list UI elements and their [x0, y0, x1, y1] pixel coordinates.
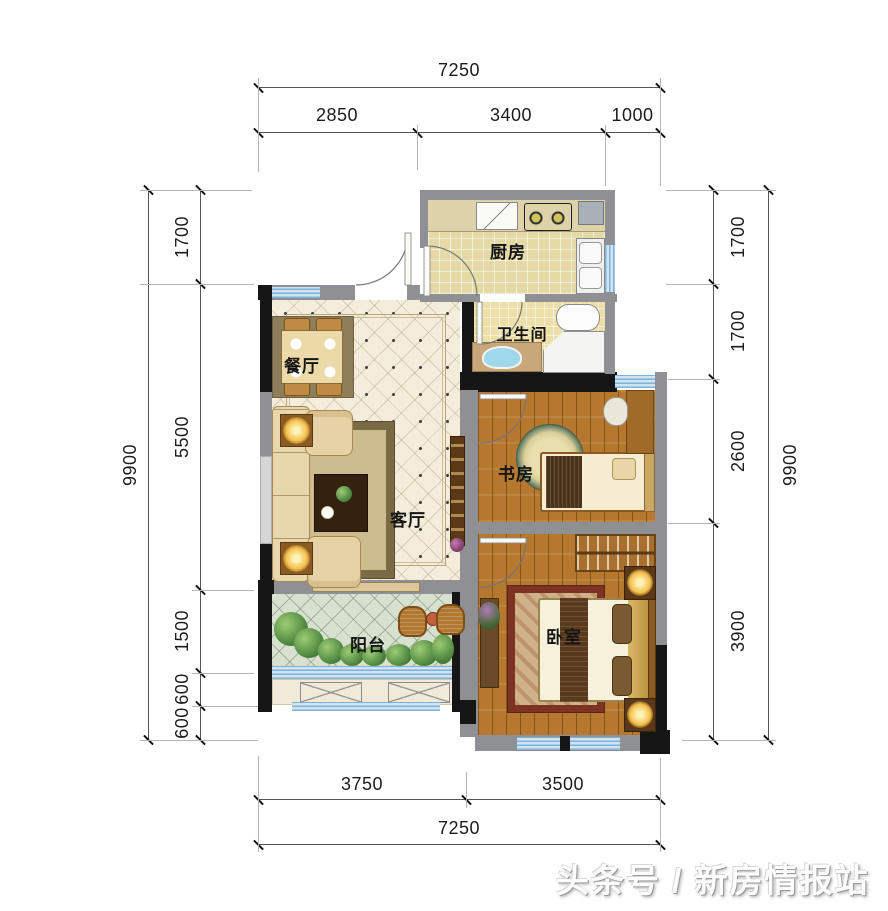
balcony-window	[272, 666, 452, 679]
balcony-left-wall	[258, 592, 272, 712]
dim-left-seg-line	[200, 190, 201, 740]
dining-label: 餐厅	[262, 352, 342, 377]
ext-line	[140, 284, 254, 285]
kitchen-appliance	[578, 201, 604, 225]
balcony-plant	[432, 634, 454, 664]
dim-top-seg-1: 2850	[297, 105, 377, 125]
ext-line	[192, 673, 254, 674]
study-window	[615, 375, 657, 388]
ext-line	[660, 758, 661, 852]
ext-line	[258, 78, 259, 172]
dining-window	[272, 287, 320, 298]
cutting-board	[476, 202, 518, 230]
left-wall-living-lower	[260, 544, 272, 584]
dim-right-seg-4: 3900	[728, 591, 748, 671]
bathroom-bottom-wall	[460, 372, 617, 392]
top-left-corner-wall	[258, 285, 272, 300]
kitchen-sink-bowl-2	[579, 267, 602, 289]
living-label: 客厅	[368, 506, 448, 531]
ext-line	[192, 590, 254, 591]
lamp-glow-bottom	[283, 545, 310, 572]
ext-line	[417, 125, 418, 170]
nightstand-lamp-top	[627, 569, 653, 596]
study-bedroom-wall	[478, 522, 667, 534]
ext-line	[668, 523, 720, 524]
bed-pillow-2	[612, 656, 632, 696]
study-bed-headboard	[644, 452, 655, 512]
kitchen-label: 厨房	[468, 238, 548, 263]
coffee-table	[314, 474, 368, 532]
left-wall-living-upper	[260, 392, 272, 456]
bedroom-label: 卧室	[524, 623, 604, 648]
dim-left-total-line	[148, 190, 149, 740]
ext-line	[466, 772, 467, 808]
ledge-vent-box-2	[388, 682, 450, 703]
left-wall-window	[260, 456, 272, 544]
ext-line	[192, 706, 258, 707]
study-desk	[626, 390, 654, 454]
bedroom-corner-black	[640, 730, 670, 754]
ext-line	[660, 78, 661, 186]
kitchen-bottom-wall-right	[525, 294, 617, 302]
dim-top-total-line	[258, 87, 660, 88]
dim-bottom-seg-1: 3750	[322, 774, 402, 794]
dim-bottom-total: 7250	[419, 818, 499, 838]
kitchen-window	[605, 245, 615, 292]
dim-left-total: 9900	[120, 425, 140, 505]
dim-right-seg-2: 1700	[728, 291, 748, 371]
coffee-table-plant	[336, 486, 352, 502]
nightstand-lamp-bottom	[627, 701, 653, 728]
kitchen-left-wall	[420, 198, 428, 248]
dim-right-total-line	[768, 190, 769, 740]
dim-right-seg-line	[713, 190, 714, 740]
bathroom-right-wall	[605, 302, 615, 374]
dim-right-total: 9900	[780, 425, 800, 505]
right-wall	[655, 388, 667, 648]
dim-left-seg-5: 600	[172, 683, 192, 763]
entrance-door-leaf	[405, 233, 411, 285]
dim-top-seg-line	[258, 132, 660, 133]
watermark-text: 头条号 / 新房情报站	[556, 854, 886, 902]
armchair-bottom	[307, 536, 361, 588]
tv-cabinet-plant	[450, 538, 464, 552]
balcony-chair-2	[436, 604, 465, 635]
bedroom-left-wall-black	[460, 700, 476, 724]
entrance-door-arc	[356, 233, 408, 285]
dim-top-total: 7250	[419, 60, 499, 80]
dim-top-seg-2: 3400	[471, 105, 551, 125]
balcony-label: 阳台	[328, 631, 408, 656]
kitchen-sink-bowl-1	[579, 242, 602, 264]
dim-bottom-total-line	[258, 844, 660, 845]
ext-line	[682, 740, 776, 741]
bed-runner	[560, 598, 588, 702]
ext-line	[140, 740, 258, 741]
dim-left-seg-1: 1700	[172, 197, 192, 277]
ext-line	[668, 379, 720, 380]
bathroom-label: 卫生间	[462, 321, 582, 345]
coffee-table-tray	[321, 506, 334, 519]
ext-line	[666, 190, 776, 191]
study-chair	[603, 397, 628, 426]
ext-line	[605, 125, 606, 186]
study-label: 书房	[476, 460, 556, 485]
ledge-vent-box-1	[300, 682, 362, 703]
ext-line	[140, 190, 252, 191]
dim-right-seg-3: 2600	[728, 411, 748, 491]
kitchen-bottom-wall-left	[420, 294, 480, 302]
tv-cabinet	[450, 436, 465, 546]
ext-line	[666, 284, 720, 285]
dim-right-seg-1: 1700	[728, 197, 748, 277]
dim-bottom-seg-2: 3500	[523, 774, 603, 794]
dim-left-seg-2: 5500	[172, 397, 192, 477]
bed-headboard	[648, 598, 656, 702]
kitchen-top-wall	[420, 190, 615, 200]
floorplan-page: { "rooms": { "kitchen": {"label": "厨房"},…	[0, 0, 888, 911]
left-wall-dining	[260, 300, 272, 392]
bed-pillow-1	[612, 604, 632, 644]
study-bed-pillow	[612, 458, 636, 480]
bedroom-window-post	[560, 736, 570, 751]
dim-bottom-seg-line	[258, 799, 660, 800]
basin	[482, 346, 522, 369]
dim-top-seg-3: 1000	[595, 105, 670, 125]
bedroom-plant	[478, 602, 500, 630]
ext-line	[258, 756, 259, 852]
top-wall-right	[407, 285, 420, 300]
stove	[524, 203, 572, 231]
lamp-glow-top	[283, 417, 310, 444]
ledge-outer-window	[292, 702, 440, 711]
